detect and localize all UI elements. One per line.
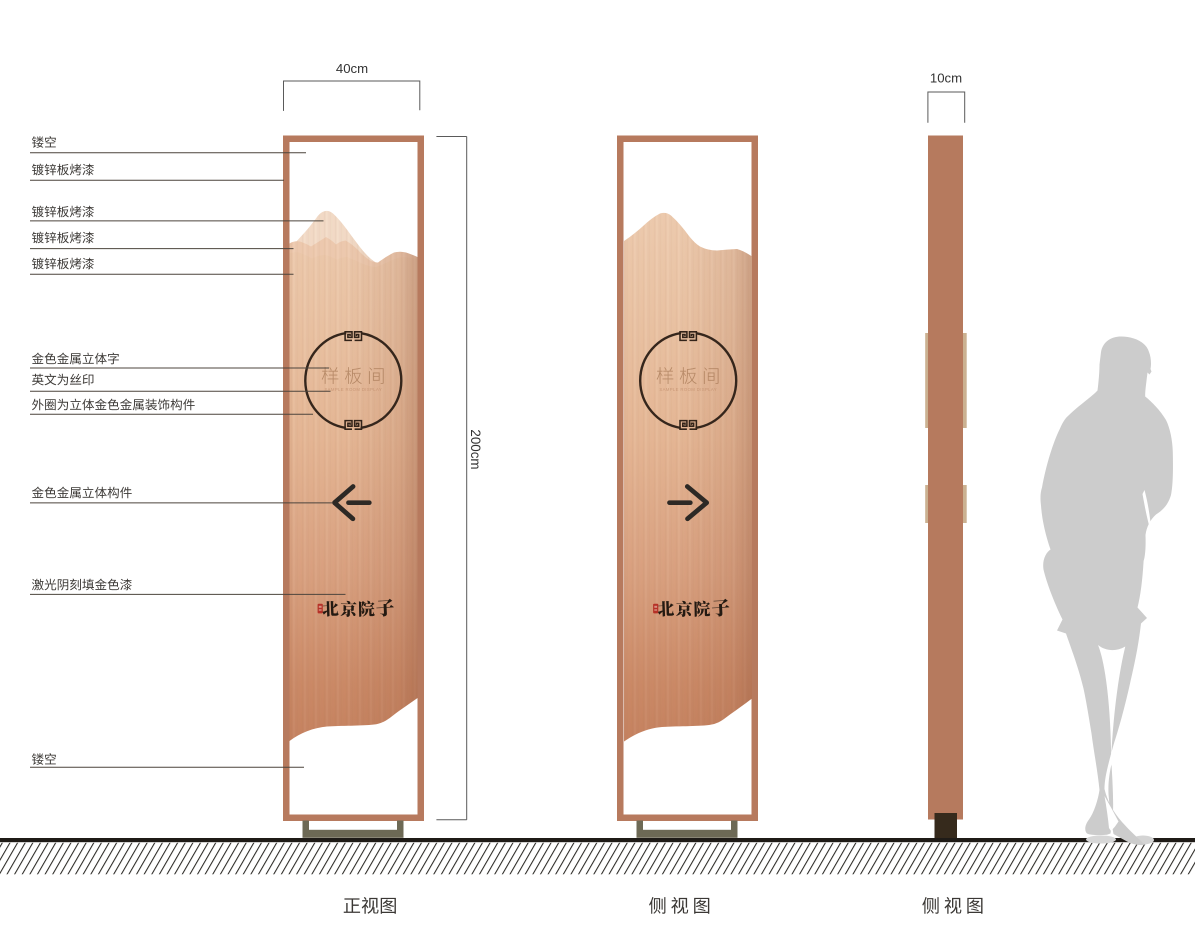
svg-text:SAMPLE ROOM DISPLAY: SAMPLE ROOM DISPLAY xyxy=(659,387,717,392)
svg-text:40cm: 40cm xyxy=(336,61,368,76)
svg-text:SAMPLE ROOM DISPLAY: SAMPLE ROOM DISPLAY xyxy=(324,387,382,392)
svg-text:200cm: 200cm xyxy=(468,429,483,469)
svg-text:10cm: 10cm xyxy=(930,70,962,85)
